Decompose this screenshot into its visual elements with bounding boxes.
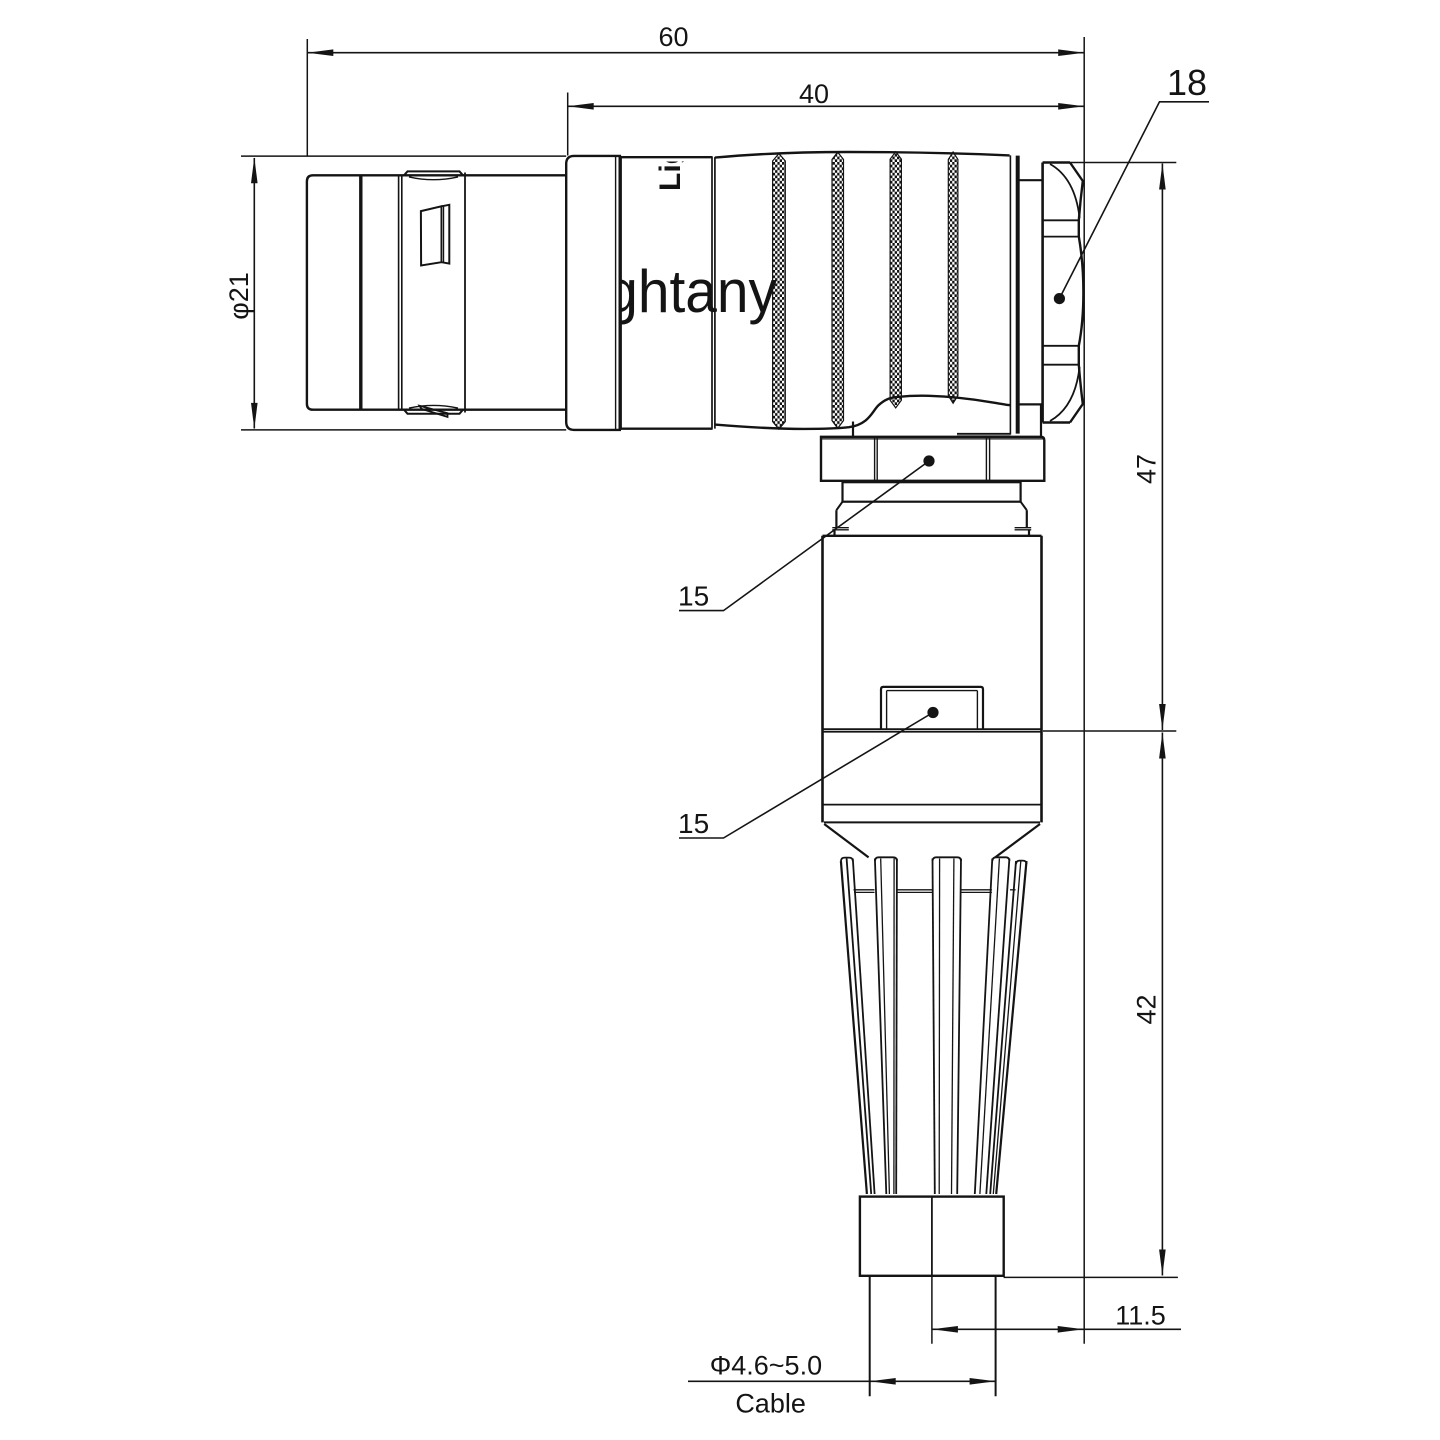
svg-text:15: 15 [678, 808, 709, 839]
svg-text:Lightany: Lightany [654, 66, 687, 191]
svg-text:11.5: 11.5 [1115, 1301, 1166, 1331]
svg-text:18: 18 [1167, 62, 1207, 103]
svg-text:42: 42 [1132, 994, 1162, 1024]
svg-text:Cable: Cable [735, 1389, 806, 1419]
svg-text:Φ4.6~5.0: Φ4.6~5.0 [710, 1351, 822, 1381]
svg-text:47: 47 [1132, 454, 1162, 484]
svg-text:15: 15 [678, 581, 709, 612]
svg-text:40: 40 [799, 79, 829, 109]
svg-text:φ21: φ21 [224, 272, 254, 320]
svg-text:60: 60 [658, 22, 688, 52]
